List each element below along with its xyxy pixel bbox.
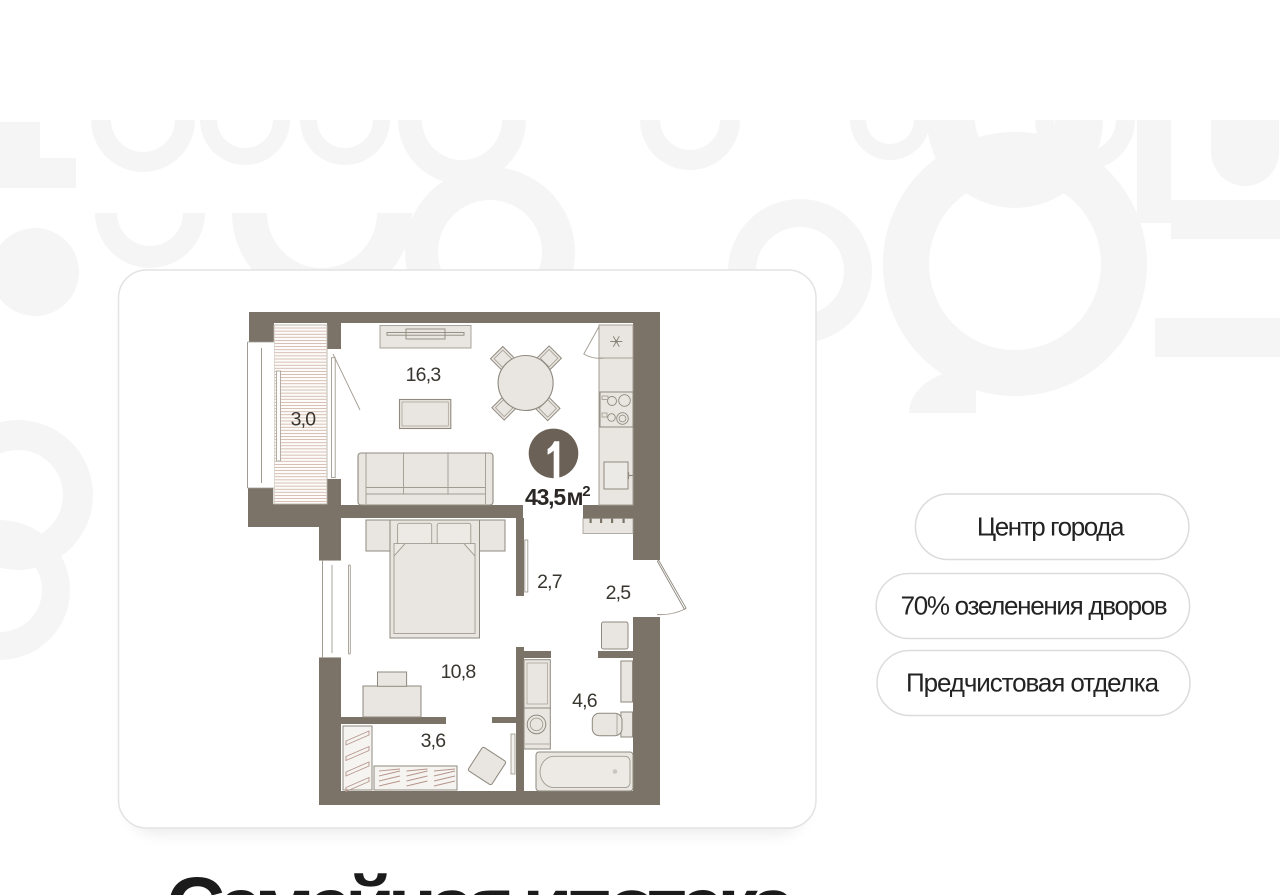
svg-text:Семейная ипотека: Семейная ипотека — [166, 861, 797, 895]
svg-text:3,6: 3,6 — [421, 730, 446, 752]
svg-text:2,7: 2,7 — [537, 571, 562, 593]
svg-text:4,6: 4,6 — [572, 690, 597, 712]
svg-text:Предчистовая отделка: Предчистовая отделка — [906, 668, 1160, 698]
svg-text:43,5м2: 43,5м2 — [525, 483, 590, 510]
svg-text:3,0: 3,0 — [291, 409, 317, 431]
svg-text:2,5: 2,5 — [606, 582, 632, 604]
svg-text:70% озеленения дворов: 70% озеленения дворов — [901, 591, 1167, 621]
svg-text:10,8: 10,8 — [441, 661, 476, 683]
svg-text:Центр города: Центр города — [977, 512, 1125, 542]
svg-text:16,3: 16,3 — [406, 364, 441, 386]
